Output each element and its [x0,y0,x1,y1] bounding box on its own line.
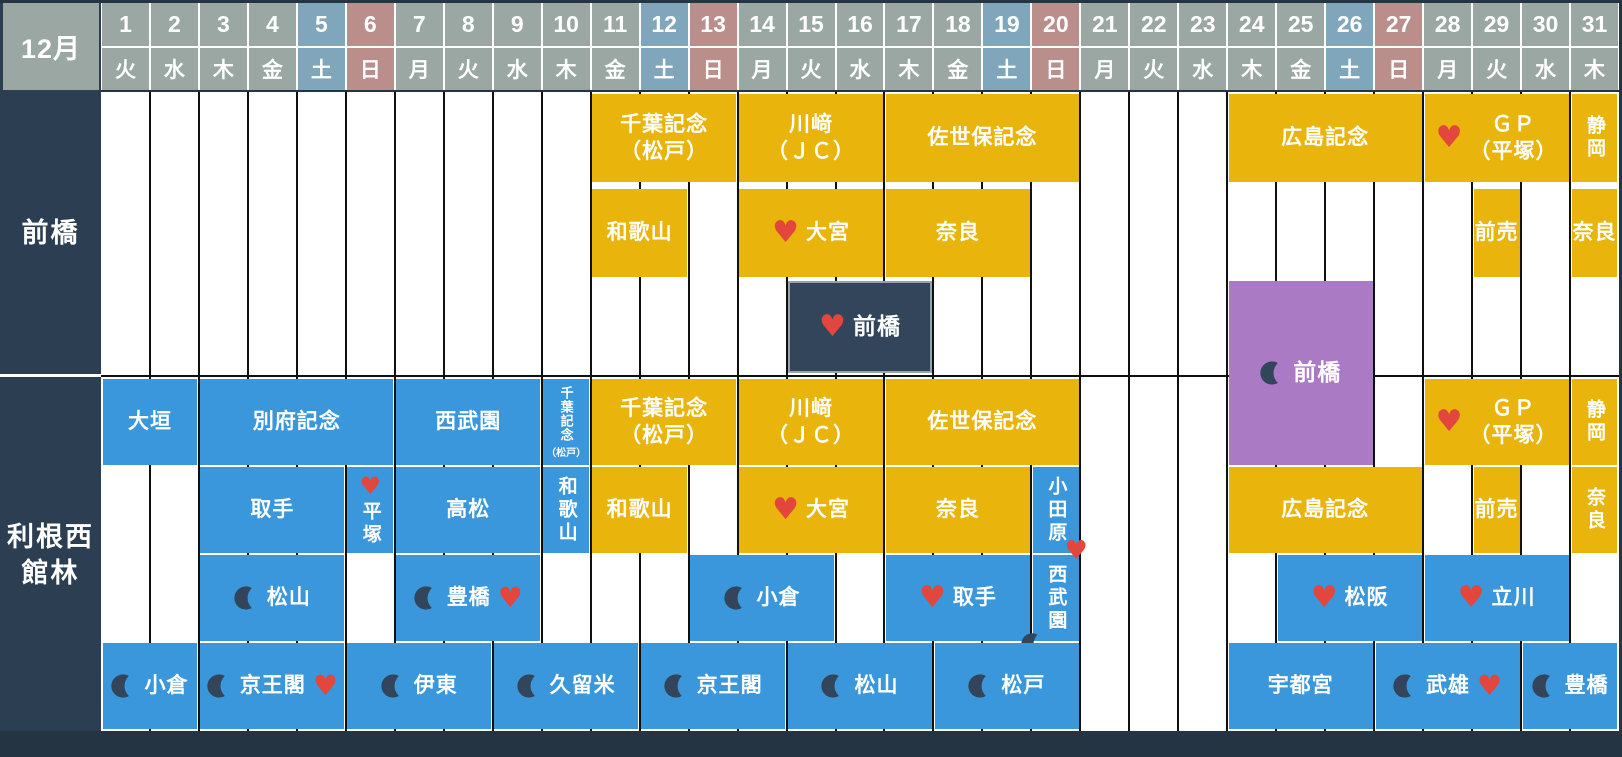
keirin-schedule-calendar: 12月 前橋 利根西 館林 1火2水3木4金5土6日7月8火9水10木11金12… [0,0,1622,757]
event-content: 京王閣 [664,672,763,699]
event-cell[interactable]: 奈良 [1572,467,1618,553]
event-label: 佐世保記念 [927,408,1037,435]
event-label: 大垣 [128,408,172,435]
event-cell[interactable]: ♥大宮 [739,189,883,277]
heart-icon: ♥ [313,672,338,700]
event-label: 和歌山 [557,476,576,545]
header-weekday: 水 [151,48,198,90]
event-label: 川﨑（ＪＣ） [767,395,855,450]
header-day-number: 10 [543,3,590,46]
event-label: 宇都宮 [1268,672,1334,699]
moon-icon [821,673,847,699]
header-day-number: 27 [1375,3,1422,46]
event-cell[interactable]: 武雄♥ [1376,643,1520,729]
section-divider-line [0,374,101,377]
event-content: 奈良 [936,496,980,523]
header-weekday: 月 [396,48,443,90]
event-cell[interactable]: 前売 [1474,189,1520,277]
heart-icon: ♥ [360,474,382,498]
event-content: ♥取手 [919,583,997,613]
header-day-number: 29 [1473,3,1520,46]
event-content: 静岡 [1585,399,1604,445]
event-cell[interactable]: 和歌山 [592,467,687,553]
event-label: 静岡 [1585,399,1604,445]
header-weekday: 日 [347,48,394,90]
event-label: 伊東 [414,672,458,699]
event-cell[interactable]: 小倉 [690,555,834,641]
event-cell[interactable]: 静岡 [1572,379,1618,465]
header-day-number: 7 [396,3,443,46]
event-label: 平塚 [361,501,380,547]
header-day-number: 28 [1424,3,1471,46]
header-day-number: 9 [494,3,541,46]
event-label: ＧＰ（平塚） [1470,395,1558,450]
event-cell[interactable]: ♥前橋 [788,281,932,373]
header-weekday: 火 [788,48,835,90]
header-weekday: 月 [1081,48,1128,90]
event-cell[interactable]: 千葉記念（松戸） [543,379,589,465]
event-cell[interactable]: 前売 [1474,467,1520,553]
event-content: 取手 [250,496,294,523]
event-cell[interactable]: ♥取手 [886,555,1030,641]
header-weekday: 木 [1571,48,1618,90]
heart-icon: ♥ [1065,538,1088,564]
header-day-number: 15 [788,3,835,46]
event-cell[interactable]: 静岡 [1572,94,1618,182]
header-weekday: 水 [1522,48,1569,90]
event-content: 千葉記念（松戸） [620,111,708,166]
grid-line [1079,92,1081,731]
event-content: 西武園 [435,408,501,435]
header-weekday: 火 [1130,48,1177,90]
heart-icon: ♥ [1436,407,1463,437]
event-label: 広島記念 [1281,496,1369,523]
event-label: 西武園 [435,408,501,435]
event-label: 大宮 [806,219,850,246]
event-label: 松戸 [1001,672,1045,699]
event-content: 和歌山 [557,476,576,545]
event-label: 大宮 [806,496,850,523]
event-label: 奈良 [1573,219,1617,246]
event-label: ＧＰ（平塚） [1470,111,1558,166]
event-label: 取手 [250,496,294,523]
header-weekday: 日 [690,48,737,90]
event-cell[interactable]: 別府記念 [200,379,393,465]
event-cell[interactable]: 小倉 [103,643,198,729]
header-day-number: 13 [690,3,737,46]
event-content: 千葉記念（松戸） [620,395,708,450]
event-label: 豊橋 [447,584,491,611]
header-weekday: 土 [1326,48,1373,90]
header-day-number: 5 [298,3,345,46]
event-label: 松山 [267,584,311,611]
event-label: 久留米 [550,672,616,699]
event-cell[interactable]: 大垣 [103,379,198,465]
header-day-number: 22 [1130,3,1177,46]
event-label: 別府記念 [253,408,341,435]
event-label: 前橋 [1293,358,1341,388]
moon-icon [1393,673,1419,699]
header-day-number: 18 [934,3,981,46]
event-cell[interactable]: 広島記念 [1229,467,1422,553]
moon-icon [664,673,690,699]
header-weekday: 火 [1473,48,1520,90]
event-cell[interactable]: 和歌山 [592,189,687,277]
event-cell[interactable]: 前橋 [1229,281,1373,465]
event-cell[interactable]: 川﨑（ＪＣ） [739,94,883,182]
moon-icon [207,673,233,699]
header-weekday: 土 [298,48,345,90]
event-content: 高松 [446,496,490,523]
event-content: ♥松阪 [1311,583,1389,613]
header-weekday: 水 [837,48,884,90]
event-label: 松山 [854,672,898,699]
header-weekday: 金 [1277,48,1324,90]
month-label: 12月 [3,3,99,90]
header-day-number: 3 [200,3,247,46]
event-label: 奈良 [1585,487,1604,533]
event-cell[interactable]: 宇都宮 [1229,643,1373,729]
event-cell[interactable]: ♥ＧＰ（平塚） [1425,94,1569,182]
event-label: 豊橋 [1565,672,1609,699]
event-label: 京王閣 [240,672,306,699]
event-cell[interactable]: 松戸 [935,643,1079,729]
event-cell[interactable]: 取手 [200,467,344,553]
event-content: 奈良 [936,219,980,246]
event-cell[interactable]: 奈良 [1572,189,1618,277]
header-day-number: 23 [1179,3,1226,46]
header-weekday: 土 [983,48,1030,90]
moon-icon [724,585,750,611]
event-content: 武雄♥ [1393,672,1502,700]
header-day-number: 19 [983,3,1030,46]
header-day-number: 12 [641,3,688,46]
heart-icon: ♥ [772,495,799,525]
event-cell[interactable]: 西武園 [396,379,540,465]
header-weekday: 日 [1032,48,1079,90]
event-cell[interactable]: ♥立川 [1425,555,1569,641]
event-label: 取手 [953,584,997,611]
event-content: 久留米 [517,672,616,699]
event-content: 小田原 [1046,476,1065,545]
event-content: 伊東 [381,672,458,699]
section-label-maebashi: 前橋 [0,92,101,374]
grid-line [1177,92,1179,731]
event-content: 川﨑（ＪＣ） [767,111,855,166]
event-cell[interactable]: 佐世保記念 [886,94,1079,182]
event-cell[interactable]: 京王閣♥ [200,643,344,729]
header-weekday: 木 [1228,48,1275,90]
event-cell[interactable]: 広島記念 [1229,94,1422,182]
header-weekday: 金 [934,48,981,90]
event-cell[interactable]: ♥大宮 [739,467,883,553]
event-cell[interactable]: 千葉記念（松戸） [592,379,736,465]
event-label: 武雄 [1426,672,1470,699]
event-content: 宇都宮 [1268,672,1334,699]
event-cell[interactable]: 高松 [396,467,540,553]
header-weekday: 火 [102,48,149,90]
event-label: 奈良 [936,496,980,523]
moon-icon [517,673,543,699]
header-day-number: 30 [1522,3,1569,46]
section-label-tonenishi-tatebayashi: 利根西 館林 [0,379,101,731]
event-content: ♥前橋 [819,312,901,342]
event-content: 奈良 [1573,219,1617,246]
event-content: 小倉 [111,672,188,699]
event-label: 前売 [1475,219,1519,246]
event-content: 松山 [821,672,898,699]
event-label: 和歌山 [607,219,673,246]
header-weekday: 水 [494,48,541,90]
header-weekday: 木 [200,48,247,90]
header-weekday: 木 [885,48,932,90]
header-day-number: 14 [739,3,786,46]
event-content: 前売 [1475,219,1519,246]
event-label: 静岡 [1585,115,1604,161]
event-content: 松戸 [968,672,1045,699]
header-day-number: 4 [249,3,296,46]
event-content: 奈良 [1585,487,1604,533]
event-content: ♥平塚 [360,474,382,547]
moon-icon [111,673,137,699]
event-content: 前売 [1475,496,1519,523]
event-label: 小倉 [144,672,188,699]
event-content: ♥大宮 [772,218,850,248]
event-cell[interactable]: 京王閣 [641,643,785,729]
heart-icon: ♥ [819,312,846,342]
event-content: 西武園 [1046,564,1065,633]
moon-icon [1532,673,1558,699]
header-weekday: 月 [1424,48,1471,90]
header-weekday: 水 [1179,48,1226,90]
header-day-number: 24 [1228,3,1275,46]
event-cell[interactable]: 松山 [200,555,344,641]
event-label: 和歌山 [607,496,673,523]
event-content: ♥立川 [1458,583,1536,613]
event-label: 前橋 [853,312,901,342]
header-day-number: 31 [1571,3,1618,46]
header-weekday: 日 [1375,48,1422,90]
event-label: 高松 [446,496,490,523]
heart-icon: ♥ [498,584,523,612]
header-weekday: 月 [739,48,786,90]
event-content: ♥ＧＰ（平塚） [1436,395,1558,450]
event-content: 京王閣♥ [207,672,338,700]
event-content: 静岡 [1585,115,1604,161]
event-content: 佐世保記念 [927,124,1037,151]
event-content: 豊橋♥ [414,584,523,612]
event-label: 西武園 [1046,564,1065,633]
event-content: 和歌山 [607,496,673,523]
event-label: 奈良 [936,219,980,246]
event-label: 松阪 [1345,584,1389,611]
event-label: 小田原 [1046,476,1065,545]
event-content: 千葉記念（松戸） [546,386,586,459]
heart-icon: ♥ [772,218,799,248]
moon-icon [381,673,407,699]
header-day-number: 25 [1277,3,1324,46]
event-cell[interactable]: 佐世保記念 [886,379,1079,465]
event-content: 豊橋 [1532,672,1609,699]
event-label: 千葉記念（松戸） [620,111,708,166]
event-cell[interactable]: 和歌山 [543,467,589,553]
event-label: 小倉 [757,584,801,611]
event-label: 川﨑（ＪＣ） [767,111,855,166]
moon-icon [234,585,260,611]
event-content: 別府記念 [253,408,341,435]
event-cell[interactable]: 川﨑（ＪＣ） [739,379,883,465]
event-cell[interactable]: 奈良 [886,189,1030,277]
moon-icon [1260,360,1286,386]
event-content: ♥大宮 [772,495,850,525]
event-label: 千葉記念（松戸） [546,386,586,459]
header-weekday: 土 [641,48,688,90]
moon-icon [968,673,994,699]
event-cell[interactable]: 豊橋 [1523,643,1618,729]
heart-icon: ♥ [1458,583,1485,613]
grid-section-divider [101,375,1619,377]
event-content: 松山 [234,584,311,611]
event-label: 立川 [1492,584,1536,611]
header-weekday: 木 [543,48,590,90]
event-cell[interactable]: 松山 [788,643,932,729]
event-label: 千葉記念（松戸） [620,395,708,450]
header-day-number: 6 [347,3,394,46]
event-cell[interactable]: 奈良 [886,467,1030,553]
event-cell[interactable]: ♥ＧＰ（平塚） [1425,379,1569,465]
event-label: 前売 [1475,496,1519,523]
event-cell[interactable]: 伊東 [347,643,491,729]
event-cell[interactable]: ♥平塚 [347,467,393,553]
heart-icon: ♥ [1436,123,1463,153]
header-weekday: 金 [249,48,296,90]
event-content: 小倉 [724,584,801,611]
event-content: 和歌山 [607,219,673,246]
event-content: ♥ＧＰ（平塚） [1436,111,1558,166]
header-day-number: 11 [592,3,639,46]
heart-icon: ♥ [919,583,946,613]
event-cell[interactable]: 千葉記念（松戸） [592,94,736,182]
header-day-number: 20 [1032,3,1079,46]
header-day-number: 16 [837,3,884,46]
event-content: 佐世保記念 [927,408,1037,435]
header-day-number: 2 [151,3,198,46]
event-content: 広島記念 [1281,124,1369,151]
header-day-number: 1 [102,3,149,46]
header-day-number: 21 [1081,3,1128,46]
grid-line [1128,92,1130,731]
event-label: 佐世保記念 [927,124,1037,151]
event-content: 広島記念 [1281,496,1369,523]
event-content: 大垣 [128,408,172,435]
header-day-number: 26 [1326,3,1373,46]
event-label: 広島記念 [1281,124,1369,151]
event-content: 前橋 [1260,358,1341,388]
event-cell[interactable]: 西武園♥ [1033,555,1079,641]
event-content: 川﨑（ＪＣ） [767,395,855,450]
event-label-sub: （松戸） [546,444,586,459]
moon-icon [414,585,440,611]
heart-icon: ♥ [1311,583,1338,613]
event-label: 京王閣 [697,672,763,699]
event-cell[interactable]: 久留米 [494,643,638,729]
header-day-number: 8 [445,3,492,46]
header-weekday: 火 [445,48,492,90]
header-weekday: 金 [592,48,639,90]
event-cell[interactable]: ♥松阪 [1278,555,1422,641]
event-cell[interactable]: 豊橋♥ [396,555,540,641]
event-label-main: 千葉記念 [560,386,573,442]
header-day-number: 17 [885,3,932,46]
heart-icon: ♥ [1477,672,1502,700]
